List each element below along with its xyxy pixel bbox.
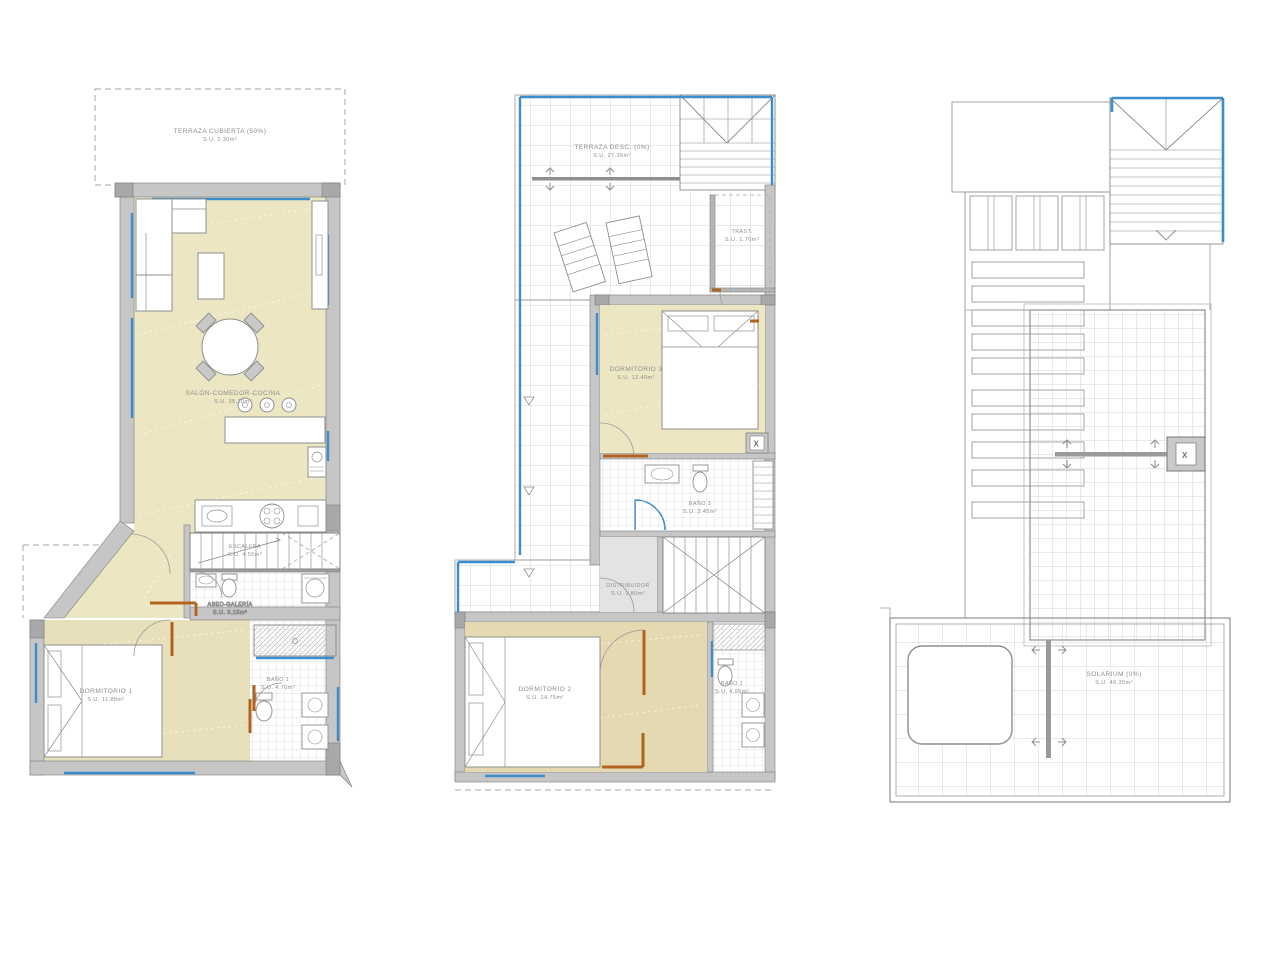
- room-area-solarium: S.U. 46.35m²: [1095, 680, 1133, 686]
- tv-unit: [312, 201, 328, 309]
- roof-stair: [1110, 98, 1223, 244]
- room-label-aseo: ASEO-GALERÍA: [208, 601, 253, 608]
- solarium-terrace: SOLARIUM (0%) S.U. 46.35m²: [890, 618, 1230, 802]
- bed: [662, 311, 758, 429]
- toilet: [256, 693, 272, 721]
- kitchen-counter: [195, 500, 326, 532]
- upper-deck: X: [1024, 304, 1211, 646]
- room-label-escalera: ESCALERA: [229, 544, 261, 550]
- room-area-salon: S.U. 35.20m²: [214, 399, 252, 405]
- ground-floor-plan: TERRAZA CUBIERTA (50%) S.U. 2.30m²: [20, 85, 390, 795]
- upper-stair: [680, 95, 775, 190]
- floorplan-sheet: TERRAZA CUBIERTA (50%) S.U. 2.30m²: [0, 0, 1280, 960]
- room-area-dormitorio3: S.U. 12.40m²: [617, 375, 655, 381]
- room-label-dormitorio1: DORMITORIO 1: [79, 688, 132, 695]
- toilet: [693, 465, 708, 471]
- room-area-escalera: S.U. 4.55m²: [228, 552, 262, 558]
- room-area-terraza-cubierta: S.U. 2.30m²: [203, 137, 237, 143]
- jacuzzi: [908, 646, 1012, 744]
- bathroom-2: BAÑO 2 S.U. 4.95m²: [713, 622, 765, 772]
- room-area-trastero: S.U. 1.70m²: [725, 237, 759, 243]
- room-label-bano1: BAÑO 1: [267, 676, 289, 683]
- distribuidor: DISTRIBUIDOR S.U. 1.80m²: [600, 537, 657, 612]
- room-label-bano3: BAÑO 3: [689, 500, 711, 507]
- x-shunt-icon: X: [754, 440, 760, 449]
- towel-radiator: [753, 461, 773, 529]
- room-label-dormitorio3: DORMITORIO 3: [609, 366, 662, 373]
- coffee-table: [198, 253, 224, 299]
- shower: [713, 624, 765, 650]
- bed: [465, 637, 600, 767]
- room-area-aseo: S.U. 3.15m²: [213, 610, 247, 616]
- first-floor-plan: TERRAZA DESC. (0%) S.U. 27.35m²: [450, 85, 790, 805]
- shower: [254, 625, 336, 656]
- bedroom-2: DORMITORIO 2 S.U. 14.75m²: [465, 622, 707, 772]
- stairwell: [663, 537, 765, 613]
- room-label-distribuidor: DISTRIBUIDOR: [606, 583, 649, 589]
- room-label-terraza-cubierta: TERRAZA CUBIERTA (50%): [174, 128, 267, 135]
- bathroom-3: BAÑO 3 S.U. 3.45m²: [600, 459, 775, 531]
- stairs: ESCALERA S.U. 4.55m²: [190, 533, 340, 569]
- dining-table: [196, 313, 264, 381]
- toilet: [718, 659, 733, 665]
- bedroom-1: DORMITORIO 1 S.U. 11.88m²: [44, 645, 162, 757]
- bedroom-3: X DORMITORIO 3 S.U. 12.40m²: [600, 305, 768, 457]
- room-label-trastero: TRAST.: [732, 229, 753, 235]
- room-label-dormitorio2: DORMITORIO 2: [518, 686, 571, 693]
- room-label-solarium: SOLARIUM (0%): [1086, 671, 1141, 678]
- shunt-box: X: [746, 433, 768, 453]
- room-area-dormitorio2: S.U. 14.75m²: [526, 695, 564, 701]
- room-area-dormitorio1: S.U. 11.88m²: [87, 697, 124, 703]
- room-area-bano2: S.U. 4.95m²: [715, 689, 749, 695]
- room-label-terraza-desc: TERRAZA DESC. (0%): [574, 144, 649, 151]
- room-area-bano3: S.U. 3.45m²: [683, 509, 717, 515]
- x-shunt-icon: X: [1182, 451, 1188, 460]
- room-area-distribuidor: S.U. 1.80m²: [611, 591, 645, 597]
- room-label-bano2: BAÑO 2: [721, 680, 743, 687]
- roof-plan: X SOLARIUM (0%) S.U. 46.35m²: [870, 90, 1240, 820]
- room-label-salon: SALÓN-COMEDOR-COCINA: [186, 388, 281, 397]
- shunt-box: X: [1167, 437, 1205, 471]
- room-area-terraza-desc: S.U. 27.35m²: [593, 153, 631, 159]
- kitchen-sink-cabinet: [308, 447, 326, 477]
